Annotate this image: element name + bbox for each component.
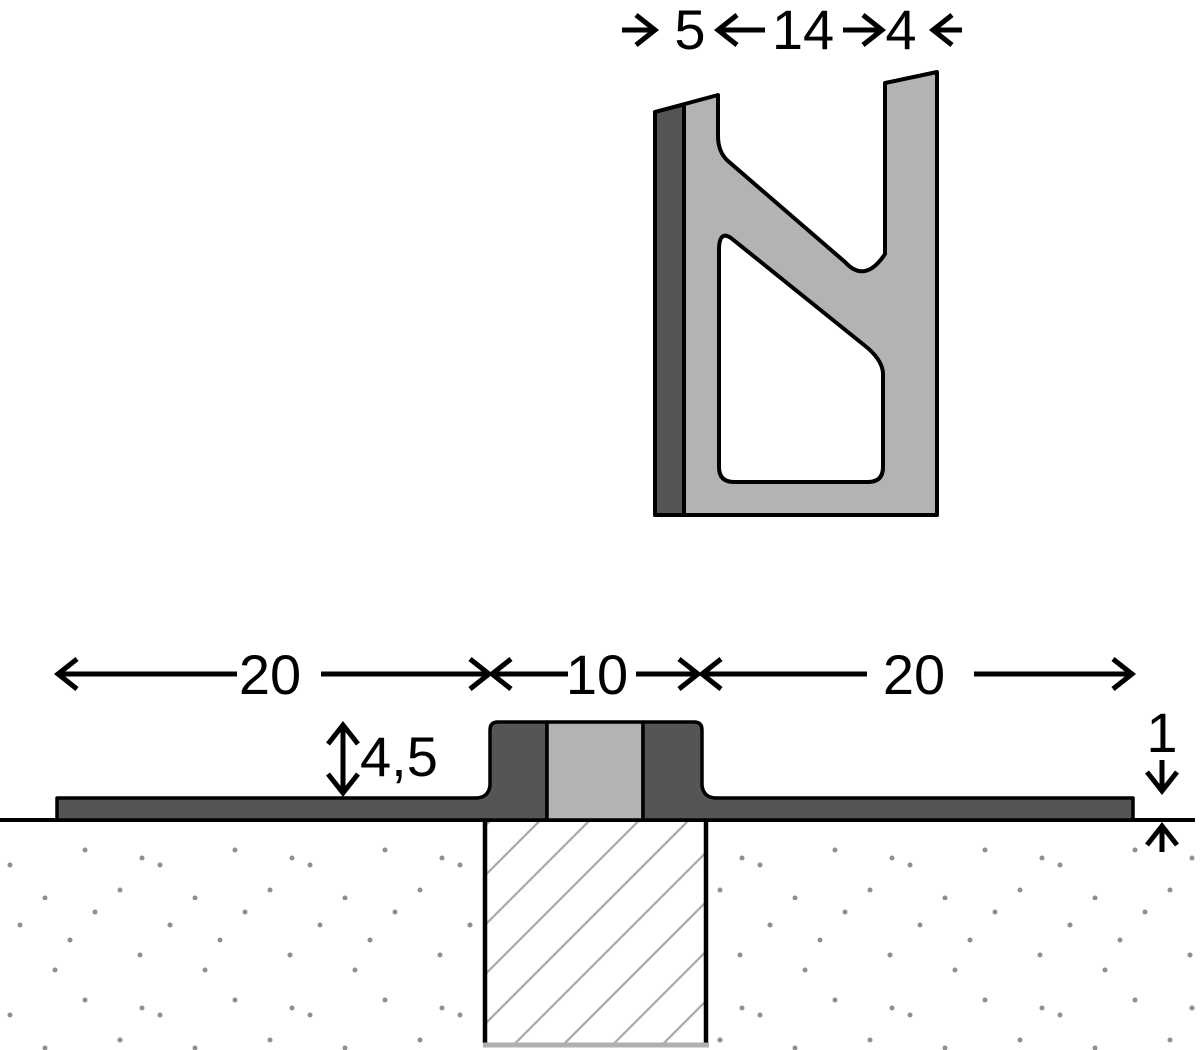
dim-label-flange-thickness: 1 (1146, 701, 1177, 764)
dim-label-joint-width: 10 (566, 643, 628, 706)
joint-profile-technical-drawing: 5 14 4 20 10 20 4,5 1 (0, 0, 1200, 1050)
installed-cross-section-view (0, 722, 1200, 1050)
dim-label-right-leg: 4 (885, 0, 916, 61)
profile-center-insert-section (547, 722, 643, 820)
profile-cross-section-view (655, 72, 937, 515)
technical-drawing-canvas: 5 14 4 20 10 20 4,5 1 (0, 0, 1200, 1050)
dim-label-gap: 14 (772, 0, 834, 61)
dim-label-left-leg: 5 (674, 0, 705, 61)
dim-label-profile-height: 4,5 (360, 725, 438, 788)
substrate-right (711, 824, 1200, 1050)
profile-anchor-strip (655, 105, 684, 516)
dim-label-left-flange: 20 (239, 643, 301, 706)
joint-filler-block (484, 822, 707, 1046)
substrate-left (0, 824, 480, 1050)
profile-right-flange-section (643, 722, 1133, 820)
dim-label-right-flange: 20 (883, 643, 945, 706)
profile-left-flange-section (57, 722, 547, 820)
